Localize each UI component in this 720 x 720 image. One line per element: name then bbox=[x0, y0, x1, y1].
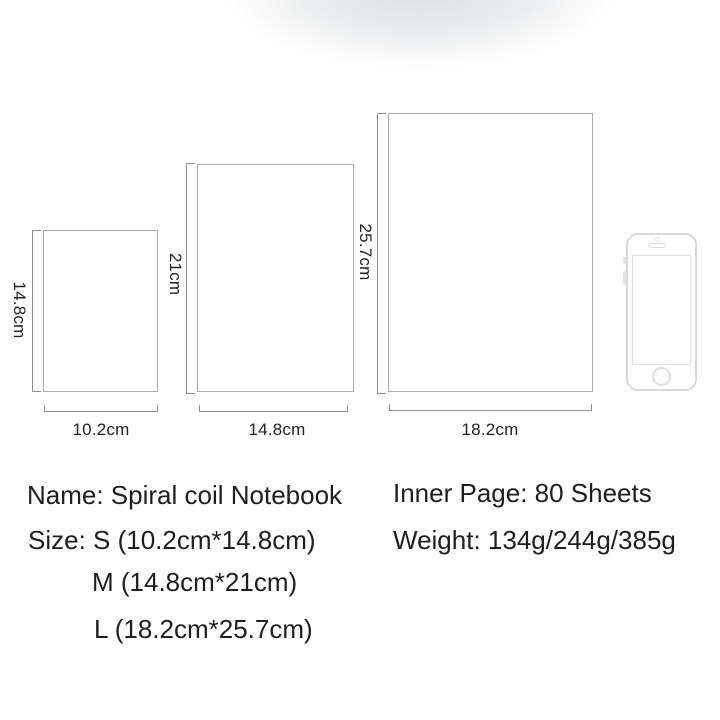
width-label-m: 14.8cm bbox=[249, 420, 306, 440]
product-name-text: Name: Spiral coil Notebook bbox=[27, 480, 342, 511]
phone-screen bbox=[632, 255, 691, 365]
height-bracket-s bbox=[32, 230, 41, 392]
product-size-diagram: 14.8cm 10.2cm 21cm 14.8cm 25.7cm 18.2cm … bbox=[0, 0, 720, 720]
height-bracket-l bbox=[377, 113, 386, 394]
width-label-l: 18.2cm bbox=[462, 420, 519, 440]
height-label-s: 14.8cm bbox=[9, 282, 29, 339]
inner-page-text: Inner Page: 80 Sheets bbox=[393, 478, 652, 509]
phone-camera-dot bbox=[655, 237, 660, 242]
phone-volume-button bbox=[623, 257, 626, 264]
notebook-outline-l bbox=[388, 113, 593, 392]
width-bracket-l bbox=[389, 404, 592, 411]
size-s-text: Size: S (10.2cm*14.8cm) bbox=[28, 525, 316, 556]
size-l-text: L (18.2cm*25.7cm) bbox=[94, 614, 313, 645]
width-bracket-m bbox=[199, 405, 348, 412]
phone-volume-button bbox=[623, 271, 626, 285]
height-label-m: 21cm bbox=[165, 253, 185, 295]
width-label-s: 10.2cm bbox=[73, 420, 130, 440]
notebook-outline-m bbox=[197, 164, 354, 392]
smartphone-icon bbox=[626, 233, 697, 391]
height-bracket-m bbox=[186, 163, 195, 394]
weight-text: Weight: 134g/244g/385g bbox=[393, 525, 676, 556]
width-bracket-s bbox=[44, 405, 158, 412]
phone-home-button bbox=[652, 367, 671, 386]
height-label-l: 25.7cm bbox=[355, 224, 375, 281]
notebook-outline-s bbox=[43, 230, 158, 392]
phone-earpiece bbox=[648, 243, 666, 248]
size-m-text: M (14.8cm*21cm) bbox=[92, 567, 297, 598]
